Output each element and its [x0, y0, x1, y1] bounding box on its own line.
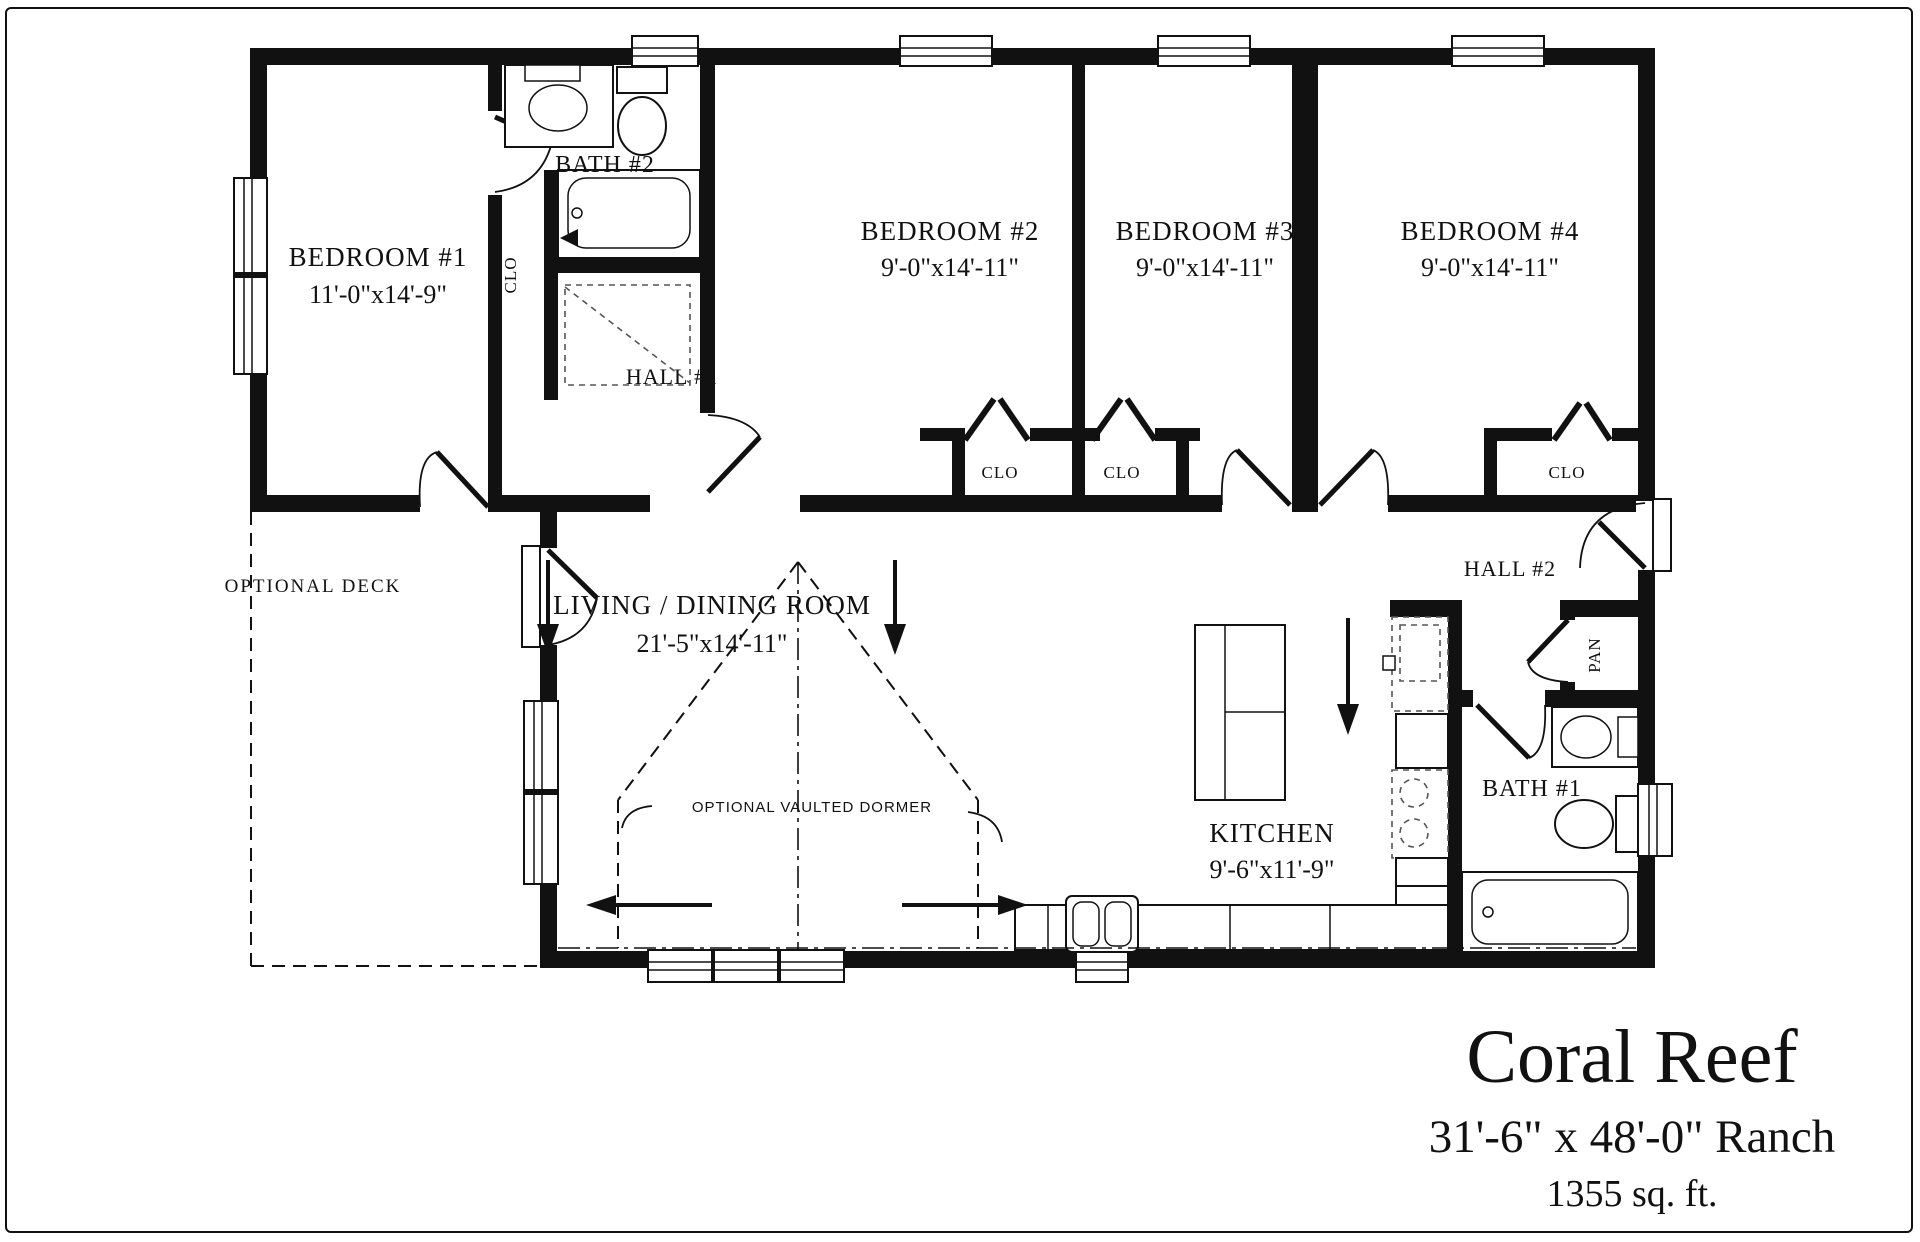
room-labels: BEDROOM #1 11'-0"x14'-9" BEDROOM #2 9'-0… — [225, 152, 1604, 884]
dormer-arrow-left — [586, 895, 712, 915]
bedroom3-window — [1158, 36, 1250, 66]
bedroom1-dims: 11'-0"x14'-9" — [309, 280, 447, 309]
bath1-fixtures — [1462, 707, 1638, 952]
pantry-label: PAN — [1585, 637, 1604, 672]
title-block: Coral Reef 31'-6" x 48'-0" Ranch 1355 sq… — [1429, 1015, 1835, 1215]
bedroom4-closet-label: CLO — [1549, 463, 1586, 482]
living-window-2 — [714, 950, 778, 982]
bedroom1-window — [234, 178, 267, 374]
down-arrow-3 — [1337, 618, 1359, 735]
hall1-label: HALL #1 — [626, 364, 718, 389]
kitchen-sink — [1066, 896, 1138, 952]
bedroom2-window — [900, 36, 992, 66]
bedroom3-dims: 9'-0"x14'-11" — [1136, 253, 1274, 282]
plan-area: 1355 sq. ft. — [1547, 1173, 1718, 1215]
bath2-label: BATH #2 — [555, 152, 655, 178]
bedroom2-label: BEDROOM #2 — [861, 216, 1040, 246]
bath2-tub — [558, 170, 700, 258]
bedroom4-label: BEDROOM #4 — [1401, 216, 1580, 246]
bath2-toilet — [617, 67, 667, 155]
kitchen-fixtures — [1015, 617, 1448, 952]
kitchen-label: KITCHEN — [1209, 818, 1334, 848]
bath2-vanity — [505, 65, 613, 147]
bath1-tub — [1462, 872, 1638, 952]
bath1-toilet — [1555, 796, 1638, 852]
kitchen-window — [1076, 950, 1128, 982]
living-window-3 — [780, 950, 844, 982]
bedroom4-window — [1452, 36, 1544, 66]
dormer-leader-left — [622, 806, 652, 828]
hall2-label: HALL #2 — [1464, 556, 1556, 581]
dormer-leader-right — [968, 812, 1002, 842]
bedroom1-label: BEDROOM #1 — [289, 242, 468, 272]
kitchen-oven — [1396, 714, 1448, 768]
deck-label: OPTIONAL DECK — [225, 576, 402, 597]
bedroom4-dims: 9'-0"x14'-11" — [1421, 253, 1559, 282]
dormer-arrow-right — [902, 895, 1028, 915]
down-arrow-2 — [884, 560, 906, 655]
bath1-door — [1477, 705, 1545, 758]
kitchen-range — [1392, 770, 1448, 858]
bath2-fixtures — [505, 65, 700, 385]
kitchen-dims: 9'-6"x11'-9" — [1210, 855, 1335, 884]
dormer-note: OPTIONAL VAULTED DORMER — [692, 799, 932, 816]
plan-size: 31'-6" x 48'-0" Ranch — [1429, 1111, 1835, 1163]
deck-window — [524, 701, 558, 884]
bath1-window — [1638, 784, 1672, 856]
floor-plan-drawing: BEDROOM #1 11'-0"x14'-9" BEDROOM #2 9'-0… — [0, 0, 1920, 1242]
living-dining-label: LIVING / DINING ROOM — [553, 590, 871, 620]
bath1-vanity — [1552, 707, 1638, 767]
bath2-window — [632, 36, 698, 66]
plan-name: Coral Reef — [1466, 1015, 1798, 1099]
bedroom3-label: BEDROOM #3 — [1116, 216, 1295, 246]
bedroom3-closet-label: CLO — [1104, 463, 1141, 482]
floor-plan-page: BEDROOM #1 11'-0"x14'-9" BEDROOM #2 9'-0… — [0, 0, 1920, 1242]
kitchen-counter-right — [1396, 858, 1448, 886]
bath2-closet-label: CLO — [501, 257, 520, 294]
living-dining-dims: 21'-5"x14'-11" — [637, 629, 788, 658]
bedroom2-closet-label: CLO — [982, 463, 1019, 482]
living-window-1 — [648, 950, 712, 982]
kitchen-refrigerator — [1195, 625, 1285, 800]
bath1-label: BATH #1 — [1482, 776, 1582, 802]
bedroom2-dims: 9'-0"x14'-11" — [881, 253, 1019, 282]
kitchen-wall-cabinets — [1383, 617, 1448, 711]
